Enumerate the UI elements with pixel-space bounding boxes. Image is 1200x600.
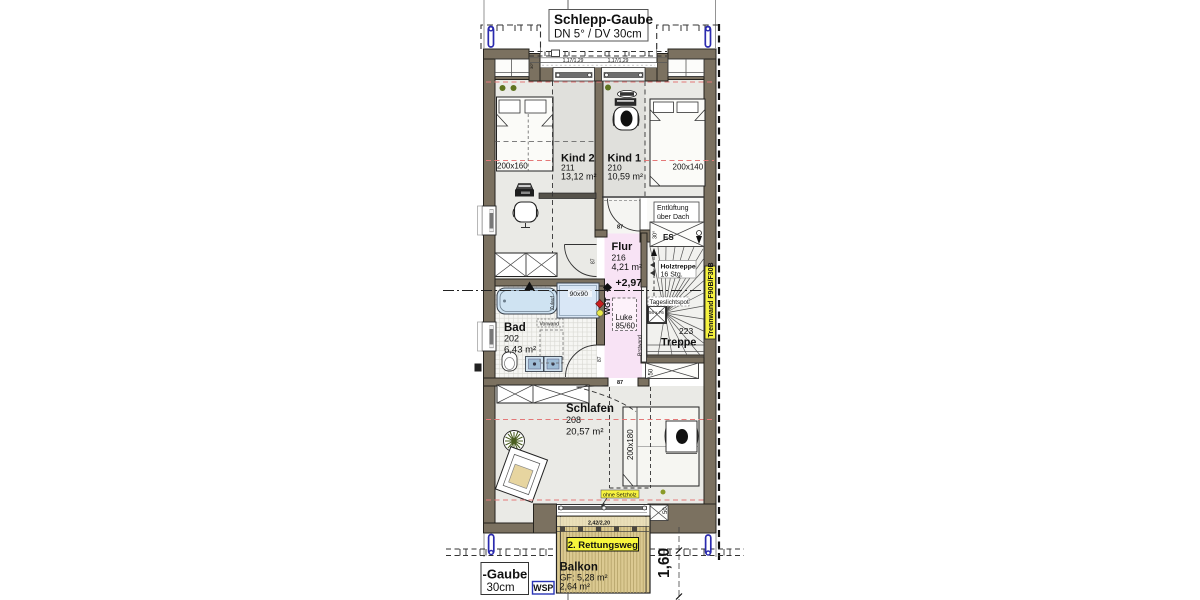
svg-text:Trennwand F90B/F30B: Trennwand F90B/F30B — [708, 262, 715, 337]
svg-text:85/60: 85/60 — [616, 322, 636, 331]
svg-text:-Gaube: -Gaube — [483, 567, 528, 582]
svg-text:6,43 m²: 6,43 m² — [504, 345, 536, 356]
svg-text:20,57 m²: 20,57 m² — [566, 427, 604, 438]
svg-text:30°: 30° — [529, 63, 534, 69]
svg-text:1,60: 1,60 — [656, 548, 673, 578]
svg-text:200x160: 200x160 — [497, 162, 528, 171]
svg-text:+2,97: +2,97 — [616, 277, 643, 289]
svg-text:208: 208 — [566, 415, 581, 425]
svg-text:90x90: 90x90 — [570, 291, 589, 298]
svg-text:Bad: Bad — [504, 322, 526, 334]
svg-text:Entlüftung: Entlüftung — [657, 205, 689, 212]
svg-text:87: 87 — [617, 380, 623, 386]
svg-text:Treppe: Treppe — [661, 337, 696, 349]
svg-text:1,17/1,29: 1,17/1,29 — [608, 58, 629, 64]
svg-text:Zulauf: Zulauf — [550, 295, 556, 310]
svg-text:WSP: WSP — [533, 583, 553, 593]
svg-text:ES: ES — [663, 233, 674, 242]
svg-text:DN 5° / DV 30cm: DN 5° / DV 30cm — [554, 29, 642, 41]
svg-text:50: 50 — [649, 368, 655, 375]
svg-text:87: 87 — [617, 225, 623, 231]
svg-text:50: 50 — [663, 507, 669, 514]
svg-text:ohne Setzholz: ohne Setzholz — [603, 492, 637, 498]
svg-text:13,12 m²: 13,12 m² — [561, 172, 597, 182]
svg-text:10,59 m²: 10,59 m² — [608, 172, 644, 182]
svg-text:2. Rettungsweg: 2. Rettungsweg — [568, 540, 638, 551]
svg-text:56 x 76: 56 x 76 — [649, 310, 664, 315]
svg-text:Vorwand: Vorwand — [540, 322, 560, 328]
svg-text:2,64 m²: 2,64 m² — [560, 582, 591, 592]
svg-text:30cm: 30cm — [487, 582, 515, 594]
svg-text:1,17/1,29: 1,17/1,29 — [563, 58, 584, 64]
svg-text:Holztreppe: Holztreppe — [661, 264, 696, 271]
svg-text:WGT: WGT — [603, 297, 612, 315]
svg-text:87: 87 — [591, 258, 597, 264]
svg-text:2,42/2,20: 2,42/2,20 — [588, 521, 610, 527]
svg-text:202: 202 — [504, 334, 519, 344]
svg-text:16 Stg.: 16 Stg. — [661, 272, 683, 279]
svg-text:223: 223 — [679, 326, 693, 336]
svg-text:200x140: 200x140 — [673, 163, 704, 172]
svg-text:Flur: Flur — [612, 241, 633, 253]
svg-text:über Dach: über Dach — [657, 214, 689, 221]
svg-text:Schlafen: Schlafen — [566, 403, 614, 415]
svg-text:216: 216 — [612, 253, 626, 263]
svg-text:Schlepp-Gaube: Schlepp-Gaube — [554, 12, 654, 27]
svg-text:Tageslichtspot: Tageslichtspot — [650, 299, 689, 306]
svg-text:30°: 30° — [653, 231, 659, 239]
svg-text:Brstwand: Brstwand — [638, 335, 644, 356]
svg-text:200x180: 200x180 — [626, 429, 635, 460]
svg-text:4,21 m²: 4,21 m² — [612, 262, 643, 272]
svg-text:87: 87 — [597, 356, 603, 362]
